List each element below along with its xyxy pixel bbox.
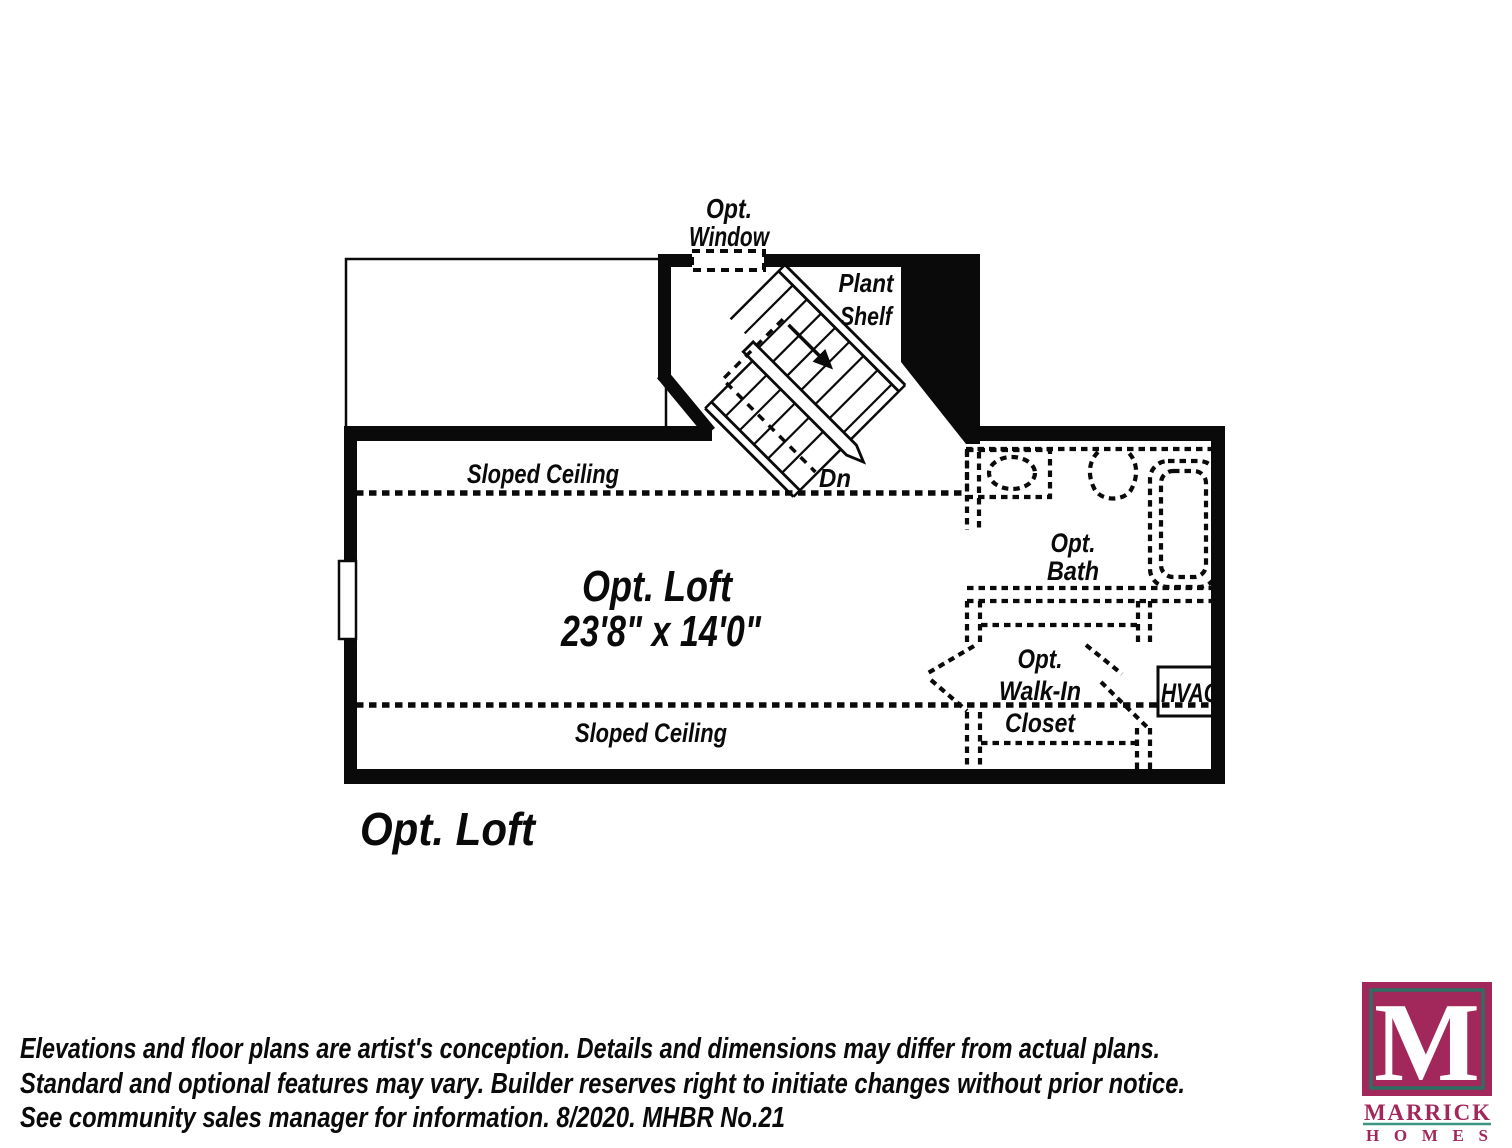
stair-left-wall [658,254,671,380]
logo-monogram: M [1374,981,1480,1105]
opt-window-dashed [692,251,764,270]
attic-open-area [346,259,666,431]
left-wall-upper [344,426,357,564]
bath-label-line1: Opt. [1051,528,1096,558]
stair-down-label: Dn [819,463,851,493]
closet-right-wall-lower [1137,728,1150,769]
hvac-label: HVAC [1161,678,1219,708]
stair-left-treads [726,375,824,473]
floor-plan-sheet: Opt. Window Plant Shelf Sloped Ceiling D… [0,0,1512,1148]
closet-left-wall-lower [967,712,980,769]
stair-top-wall-right [762,254,904,267]
room-name-label: Opt. Loft [582,562,734,611]
left-wall-lower [344,636,357,784]
bath-top-wall [964,426,1225,441]
left-window-marker [339,561,356,639]
marrick-homes-logo: M MARRICK HOMES [1362,981,1492,1145]
sloped-ceiling-label-bottom: Sloped Ceiling [575,718,727,748]
logo-brand-sub: HOMES [1366,1126,1488,1145]
closet-label-line2: Walk-In [999,676,1081,706]
tub-inner [1161,471,1206,577]
opt-window-label-line1: Opt. [706,193,752,224]
disclaimer: Elevations and floor plans are artist's … [20,1033,1185,1134]
plant-shelf-label-line2: Shelf [840,301,894,331]
bottom-wall [344,769,1225,784]
floor-plan-svg: Opt. Window Plant Shelf Sloped Ceiling D… [0,0,1512,1148]
closet-right-door-notch [1086,645,1147,727]
sloped-ceiling-label-top: Sloped Ceiling [467,459,619,489]
toilet [1090,452,1136,499]
stair-diagonal-wall [662,374,710,432]
disclaimer-line2: Standard and optional features may vary.… [20,1068,1185,1100]
solid-wall-wedge [901,254,980,444]
closet-left-door-notch [928,646,974,711]
loft-top-wall [344,426,712,441]
disclaimer-line1: Elevations and floor plans are artist's … [20,1033,1160,1065]
bath-label-line2: Bath [1047,556,1099,586]
right-wall [1211,426,1225,784]
plant-shelf-label-line1: Plant [839,268,895,298]
disclaimer-line3: See community sales manager for informat… [20,1102,785,1134]
closet-label-line3: Closet [1005,708,1076,738]
closet-label-line1: Opt. [1018,644,1063,674]
sheet-title: Opt. Loft [360,803,537,855]
sink [989,457,1035,489]
opt-window-label-line2: Window [689,221,771,252]
room-dimensions-label: 23'8" x 14'0" [560,607,762,656]
logo-brand: MARRICK [1364,1100,1490,1125]
